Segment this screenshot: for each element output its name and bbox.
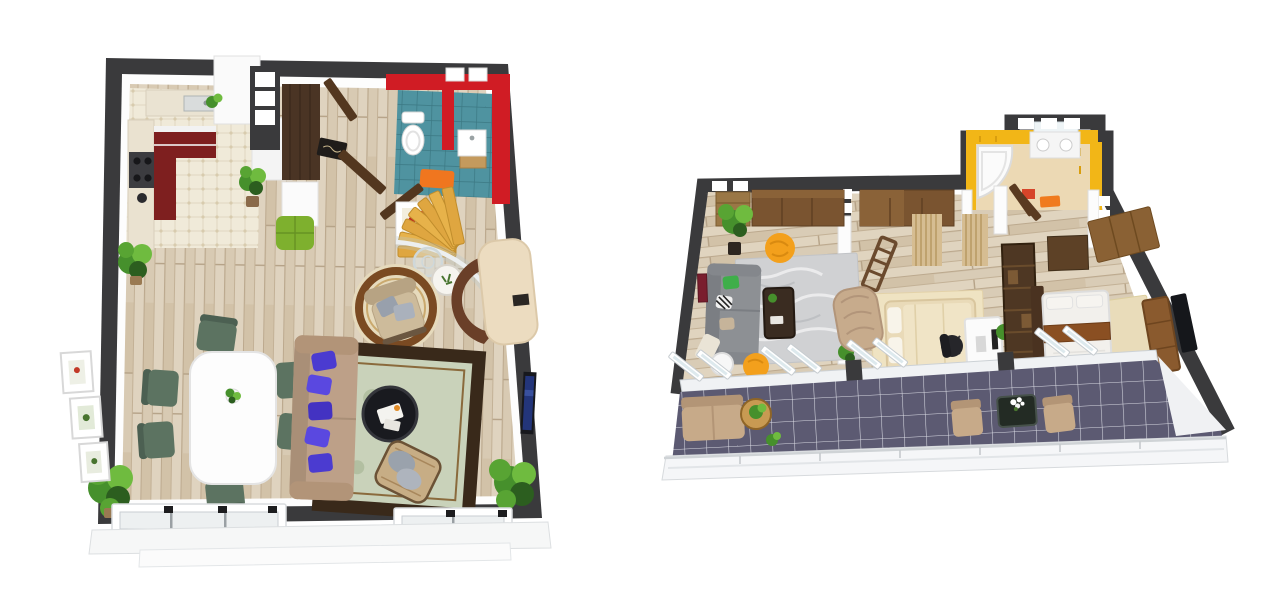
kettle: [137, 193, 147, 203]
wall-bed1-bed2: [994, 186, 1007, 234]
top-window-sq-1: [712, 181, 727, 191]
screenshot-canvas: [0, 0, 1282, 600]
balcony-marble-table: [997, 395, 1037, 428]
bean-chair-yellow: [765, 233, 795, 263]
dining-chair-top: [196, 314, 239, 355]
bath-mat-b: [1040, 195, 1061, 207]
coffee-table: [363, 387, 417, 441]
dining-table: [190, 352, 276, 484]
entry-wardrobe: [282, 84, 320, 180]
closet-bed2: [1047, 235, 1088, 270]
bath-window-1: [1018, 118, 1034, 129]
dining-chair-left-2: [137, 421, 175, 459]
bar-cabinet: [477, 237, 540, 346]
bath-window-3: [1064, 118, 1080, 129]
floorplan-right: [645, 92, 1255, 497]
bed-pillow-1: [887, 307, 902, 333]
bathroom-red-wall-right: [492, 74, 510, 204]
sofa-pillow-zebra: [715, 295, 733, 310]
bed2-pillow-2: [1076, 295, 1103, 308]
bathroom-red-partition: [442, 84, 454, 150]
top-wall-window-1: [446, 68, 464, 81]
sofa-pillow-5: [308, 453, 334, 473]
balcony-chair-1: [950, 399, 983, 437]
bathroom-right-plan: [966, 118, 1102, 222]
bar-vent: [512, 294, 529, 307]
bed2-pillow-1: [1046, 296, 1073, 309]
bathroom-sink: [458, 130, 486, 168]
balcony-bench: [681, 394, 745, 441]
balcony-wood-table: [741, 399, 771, 429]
toilet: [402, 112, 424, 155]
sofa-pillow-green: [722, 275, 739, 290]
coffee-table-b: [763, 287, 795, 338]
green-ottoman: [276, 216, 314, 250]
wall-art-b: [698, 274, 708, 302]
floorplan-right-svg: [645, 92, 1255, 497]
top-window-sq-2: [733, 181, 748, 191]
bath-mat-orange: [419, 169, 454, 189]
sofa: [289, 335, 359, 501]
balcony-chair-2: [1042, 394, 1076, 433]
wall-stub-1: [845, 359, 862, 382]
floorplan-left: [55, 18, 570, 578]
living-room-b: [694, 190, 863, 379]
dining-chair-left-1: [141, 369, 179, 407]
wall-niche-shelves: [250, 66, 280, 150]
sofa-pillow-3: [308, 401, 333, 420]
bath-window-2: [1041, 118, 1057, 129]
floorplan-left-svg: [55, 18, 570, 578]
top-wall-window-2: [469, 68, 487, 81]
sofa-pillow-tan: [719, 317, 735, 330]
stove: [129, 152, 154, 188]
